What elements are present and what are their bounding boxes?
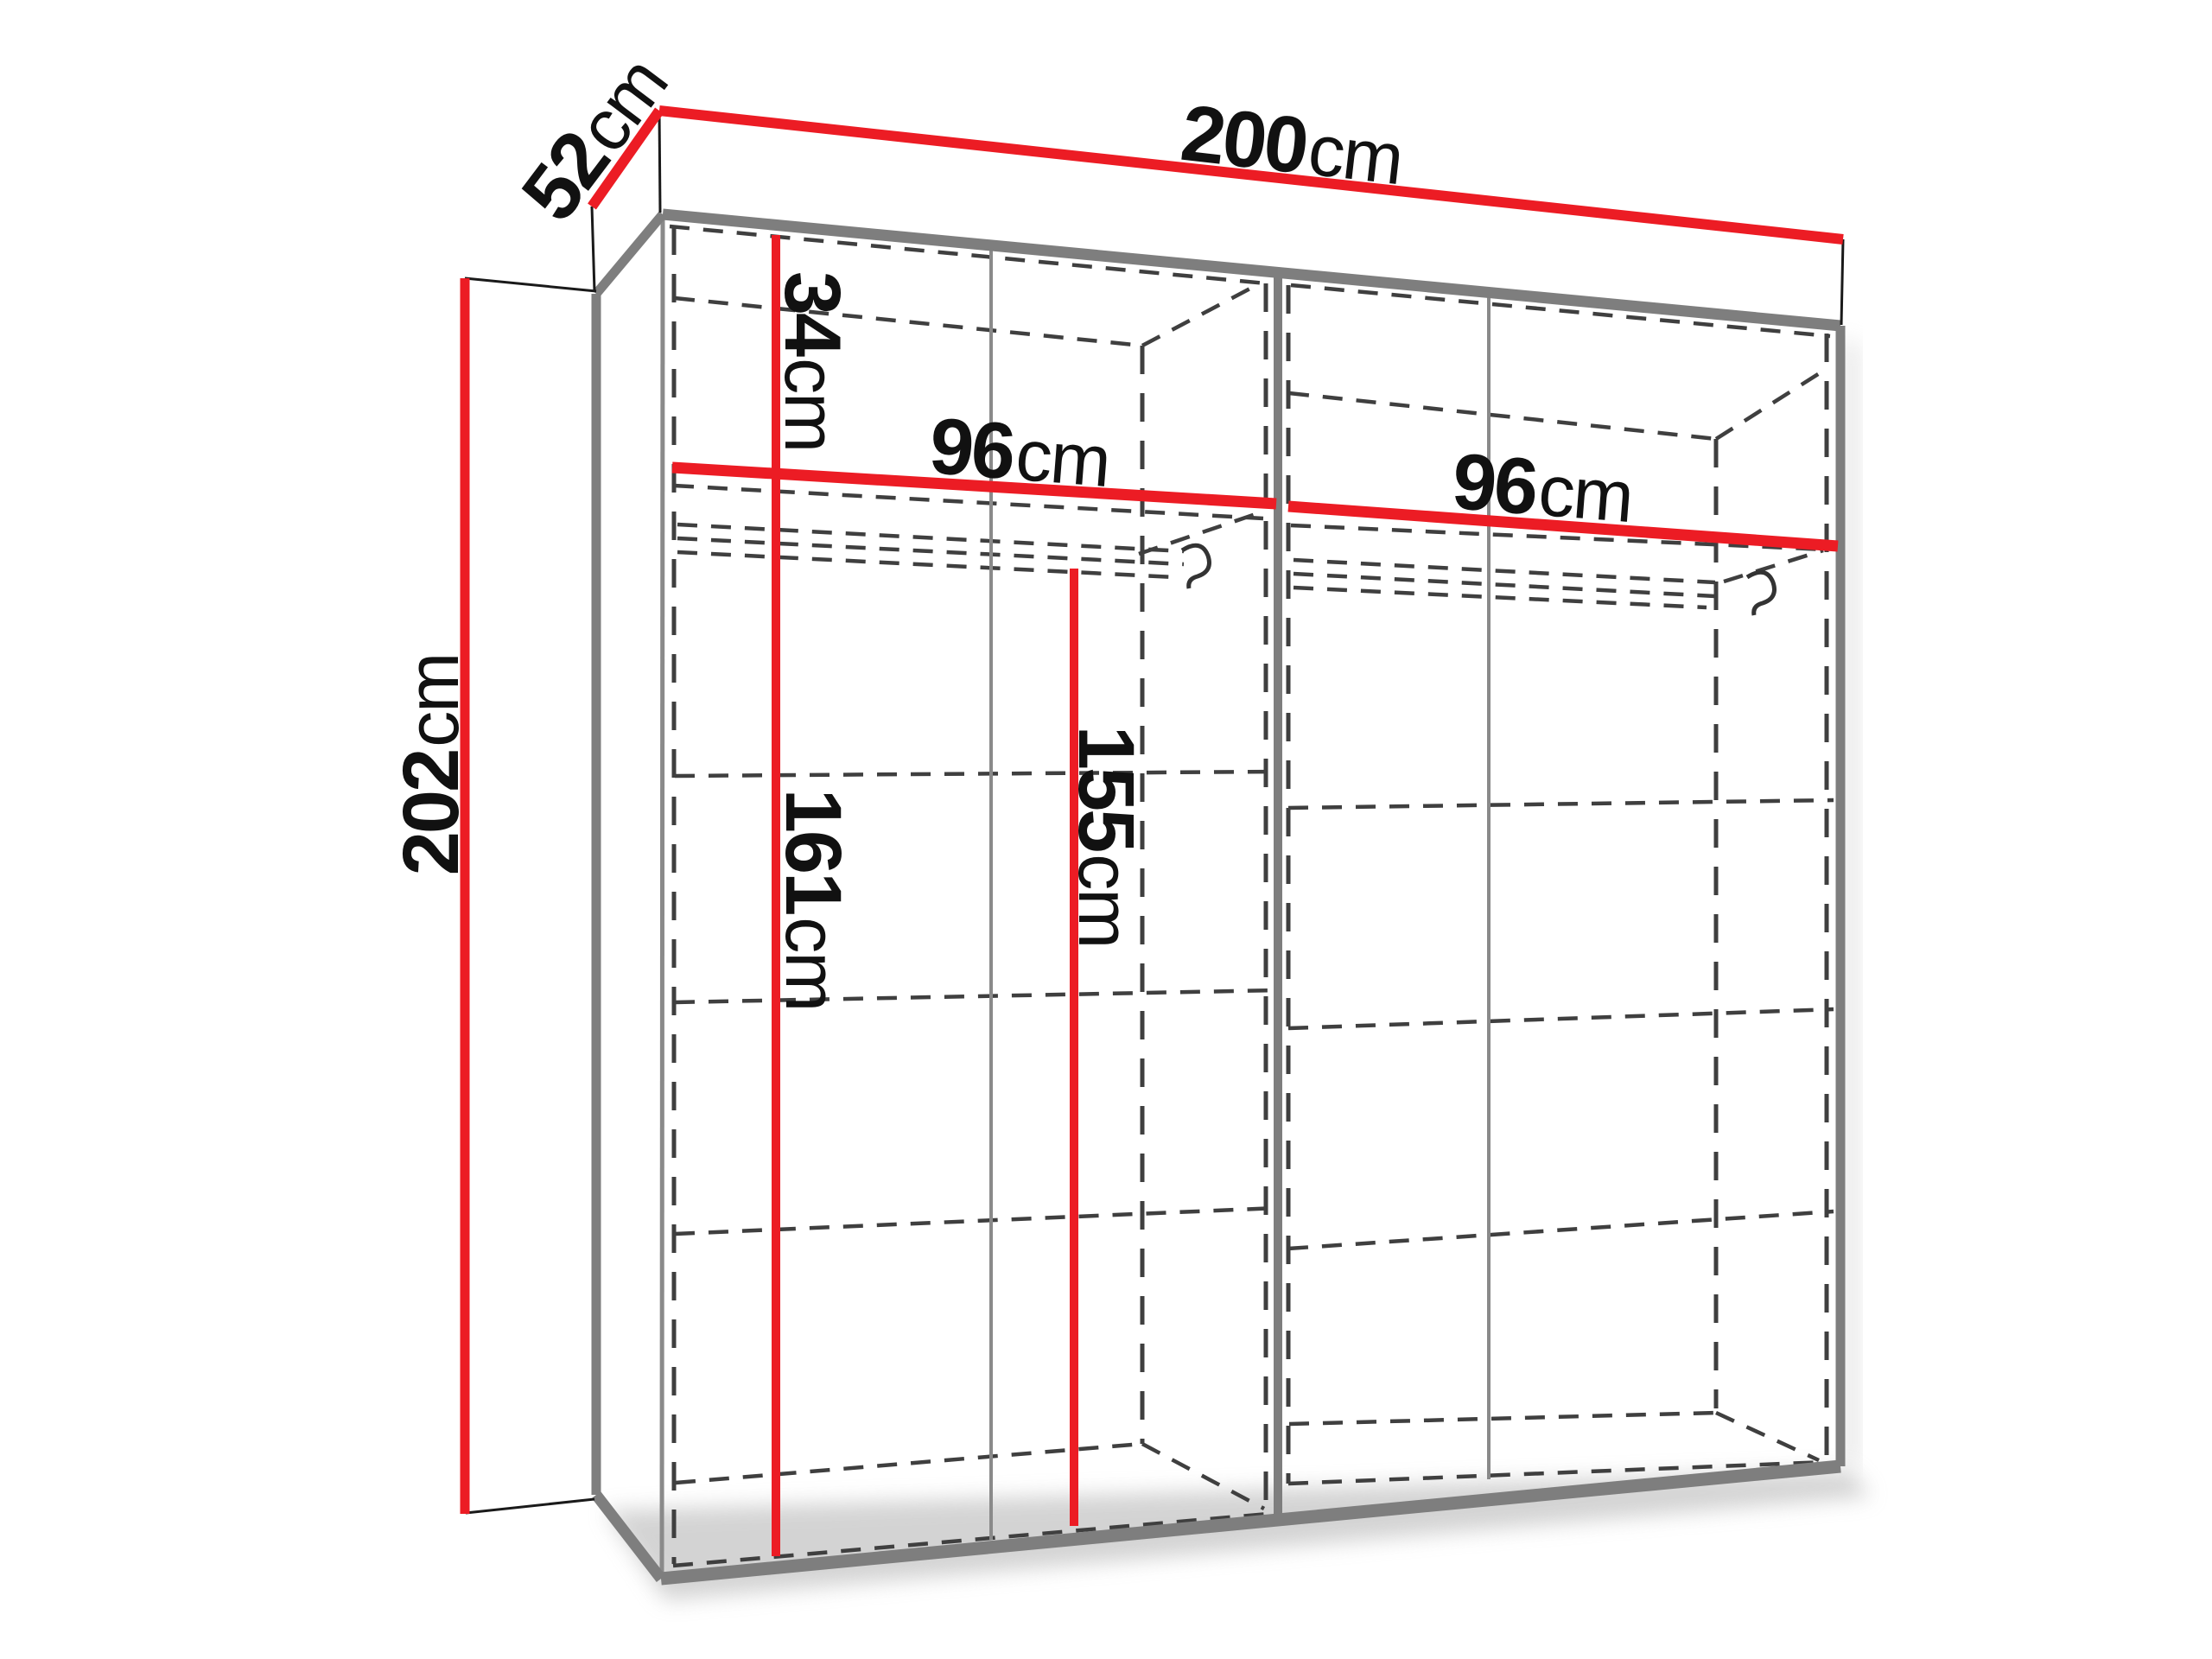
dimension-value: 96 (926, 402, 1016, 496)
dimension-label-left-interior-height: 161cm (773, 789, 853, 1010)
dimension-value: 200 (1177, 89, 1311, 191)
dimension-unit: cm (392, 654, 474, 747)
dimension-label-rail-height: 155cm (1066, 726, 1146, 947)
extension-lines (465, 111, 1843, 1513)
wardrobe-dimension-diagram: 200cm 52cm 202cm 34cm 96cm 96cm 161cm 15… (0, 0, 2212, 1659)
dimension-unit: cm (1064, 854, 1145, 947)
dimension-unit: cm (1535, 449, 1635, 537)
dimension-label-top-compartment: 34cm (772, 271, 852, 451)
dimension-value: 202 (387, 751, 475, 876)
dimension-label-height: 202cm (391, 654, 471, 875)
dimension-label-right-section-width: 96cm (1450, 442, 1636, 535)
dimension-lines (465, 111, 1843, 1556)
dimension-value: 155 (1062, 726, 1150, 851)
dimension-unit: cm (771, 917, 852, 1010)
rail-hook-icon (1747, 572, 1775, 615)
dimension-label-left-section-width: 96cm (927, 406, 1113, 499)
dimension-unit: cm (770, 358, 851, 451)
dimension-unit: cm (1305, 109, 1407, 200)
dimension-unit: cm (1013, 414, 1112, 502)
dimension-value: 34 (768, 271, 856, 354)
floor-shadow (605, 1471, 1871, 1600)
rail-hook-icon (1182, 545, 1210, 588)
dimension-value: 161 (769, 789, 857, 914)
dimension-value: 96 (1449, 437, 1539, 531)
